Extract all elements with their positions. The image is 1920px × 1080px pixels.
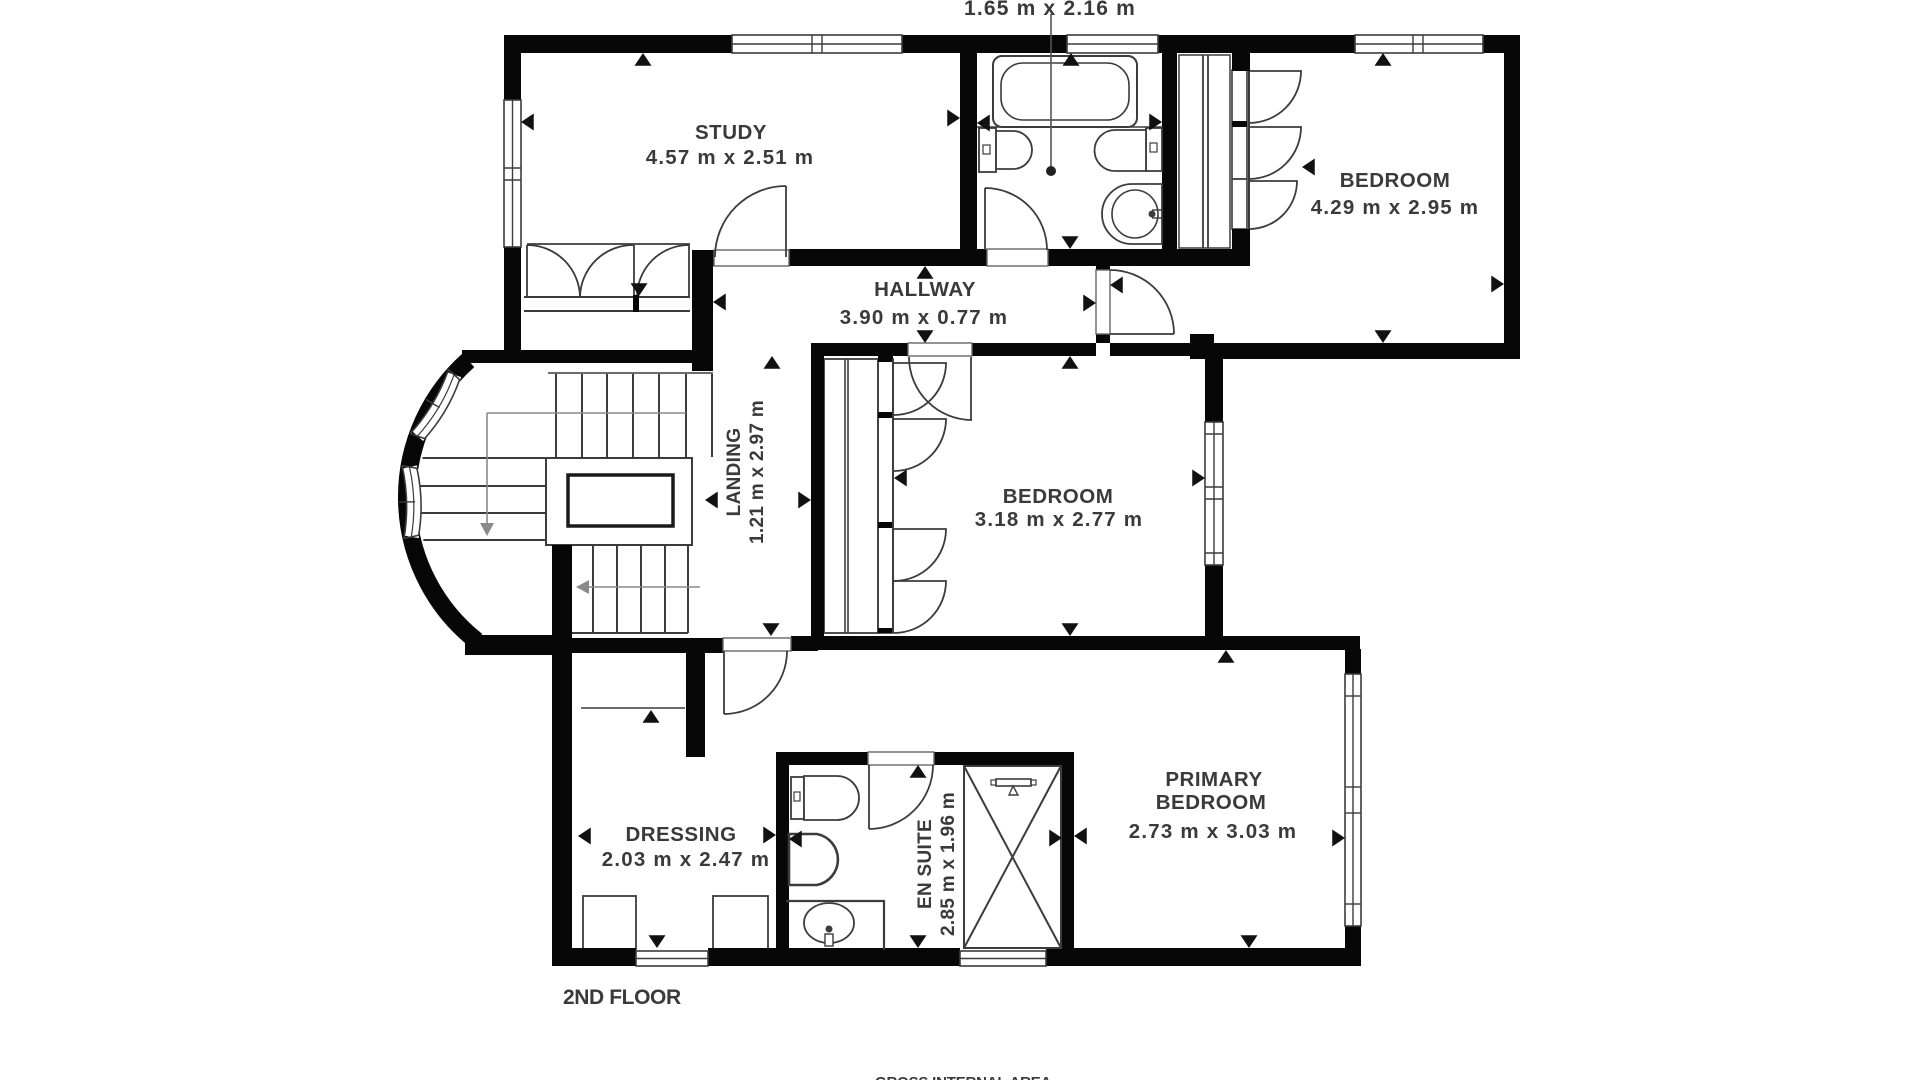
svg-text:4.57 m x 2.51 m: 4.57 m x 2.51 m: [646, 146, 814, 169]
svg-text:HALLWAY: HALLWAY: [874, 278, 976, 301]
svg-text:1.65 m x 2.16 m: 1.65 m x 2.16 m: [964, 0, 1136, 20]
svg-text:2.73 m x 3.03 m: 2.73 m x 3.03 m: [1129, 820, 1297, 843]
svg-text:2.03 m x 2.47 m: 2.03 m x 2.47 m: [602, 848, 770, 871]
svg-text:3.90 m x 0.77 m: 3.90 m x 0.77 m: [840, 306, 1008, 329]
svg-text:STUDY: STUDY: [695, 121, 767, 144]
svg-text:PRIMARY: PRIMARY: [1165, 768, 1262, 791]
svg-text:LANDING: LANDING: [724, 428, 745, 517]
svg-text:BEDROOM: BEDROOM: [1340, 169, 1451, 192]
svg-text:BEDROOM: BEDROOM: [1003, 485, 1114, 508]
svg-text:2.85 m x 1.96 m: 2.85 m x 1.96 m: [938, 792, 959, 936]
svg-text:2ND FLOOR: 2ND FLOOR: [563, 986, 681, 1009]
svg-text:1.21 m x 2.97 m: 1.21 m x 2.97 m: [747, 400, 768, 544]
svg-text:EN SUITE: EN SUITE: [915, 819, 936, 909]
svg-text:GROSS INTERNAL AREA: GROSS INTERNAL AREA: [875, 1074, 1052, 1080]
svg-text:4.29 m x 2.95 m: 4.29 m x 2.95 m: [1311, 196, 1479, 219]
svg-text:3.18 m x 2.77 m: 3.18 m x 2.77 m: [975, 508, 1143, 531]
svg-text:BEDROOM: BEDROOM: [1156, 791, 1267, 814]
svg-text:DRESSING: DRESSING: [625, 823, 736, 846]
